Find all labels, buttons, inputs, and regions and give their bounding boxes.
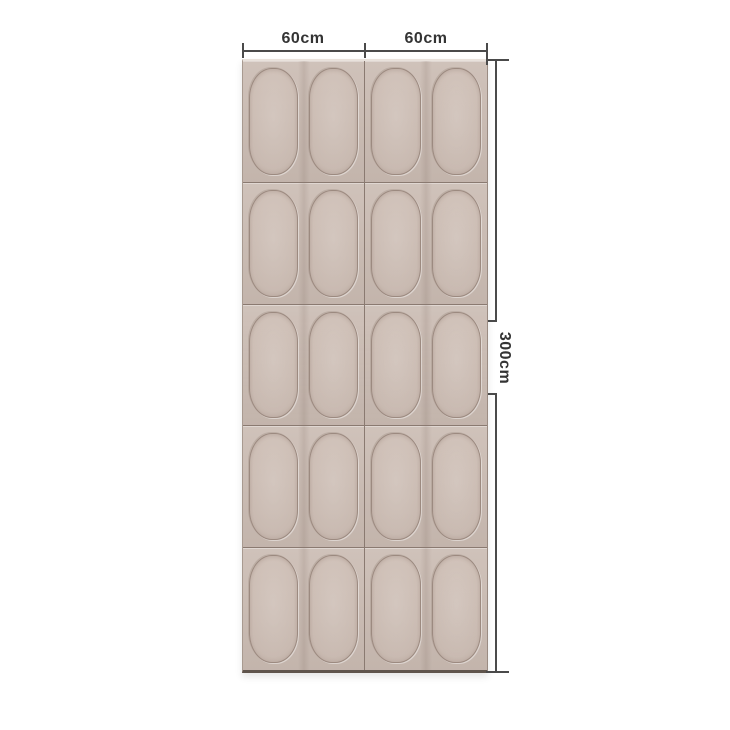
panel-tile	[365, 183, 487, 305]
diagram-canvas: 60cm 60cm 300cm	[0, 0, 730, 730]
arch-emboss	[309, 433, 358, 540]
height-dimension-line-lower	[495, 394, 497, 673]
panel-tile	[365, 61, 487, 183]
arch-emboss	[249, 555, 298, 663]
arch-emboss	[371, 68, 421, 175]
arch-emboss	[309, 555, 358, 663]
arch-emboss	[309, 68, 358, 175]
height-label: 300cm	[489, 333, 519, 383]
arch-emboss	[249, 68, 298, 175]
arch-emboss	[249, 312, 298, 419]
arch-emboss	[371, 312, 421, 419]
arch-emboss	[371, 433, 421, 540]
arch-emboss	[309, 312, 358, 419]
panel-tile	[243, 61, 365, 183]
arch-emboss	[432, 312, 482, 419]
width-label-left: 60cm	[242, 30, 364, 48]
arch-emboss	[309, 190, 358, 297]
height-tick-bottom	[486, 671, 509, 673]
arch-emboss	[432, 190, 482, 297]
panel-tile	[243, 426, 365, 548]
height-label-gap-dash-top	[488, 320, 497, 322]
width-label-right: 60cm	[364, 30, 488, 48]
arch-emboss	[371, 555, 421, 663]
panel-tile	[243, 548, 365, 670]
arch-emboss	[432, 68, 482, 175]
arch-emboss	[249, 433, 298, 540]
panel-tile	[365, 305, 487, 427]
arch-emboss	[249, 190, 298, 297]
panel-tile	[243, 183, 365, 305]
height-tick-top	[486, 59, 509, 61]
panel-tile	[365, 426, 487, 548]
wall-panel	[242, 59, 488, 673]
arch-emboss	[432, 555, 482, 663]
height-label-gap-dash-bottom	[488, 393, 497, 395]
height-dimension-line-upper	[495, 59, 497, 322]
arch-emboss	[371, 190, 421, 297]
panel-tile	[243, 305, 365, 427]
panel-tile	[365, 548, 487, 670]
arch-emboss	[432, 433, 482, 540]
